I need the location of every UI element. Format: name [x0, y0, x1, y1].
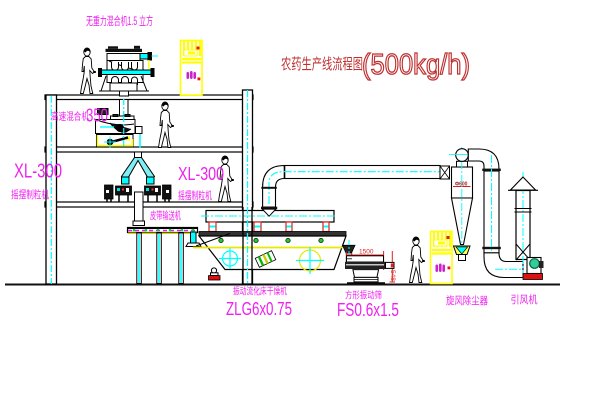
svg-text:(500kg/h): (500kg/h)	[362, 49, 470, 81]
svg-text:皮带输送机: 皮带输送机	[150, 209, 181, 222]
svg-text:Φ600: Φ600	[455, 182, 468, 188]
svg-text:无重力混合机1.5 立方: 无重力混合机1.5 立方	[86, 14, 153, 28]
svg-text:FS0.6x1.5: FS0.6x1.5	[337, 300, 399, 320]
svg-text:摇摆制粒机: 摇摆制粒机	[11, 188, 49, 201]
svg-text:1500: 1500	[359, 249, 374, 256]
svg-text:ZLG6x0.75: ZLG6x0.75	[226, 299, 292, 319]
svg-text:350: 350	[86, 106, 108, 126]
svg-text:振动流化床干燥机: 振动流化床干燥机	[233, 286, 287, 298]
svg-text:农药生产线流程图: 农药生产线流程图	[281, 56, 363, 73]
svg-text:XL-300: XL-300	[14, 161, 62, 183]
svg-text:引风机: 引风机	[511, 293, 538, 306]
svg-text:旋风除尘器: 旋风除尘器	[446, 294, 488, 307]
svg-text:高速混合机: 高速混合机	[51, 110, 89, 123]
svg-text:548: 548	[389, 270, 396, 281]
svg-text:XL-300: XL-300	[178, 164, 224, 184]
svg-text:摇摆制粒机: 摇摆制粒机	[178, 189, 212, 202]
